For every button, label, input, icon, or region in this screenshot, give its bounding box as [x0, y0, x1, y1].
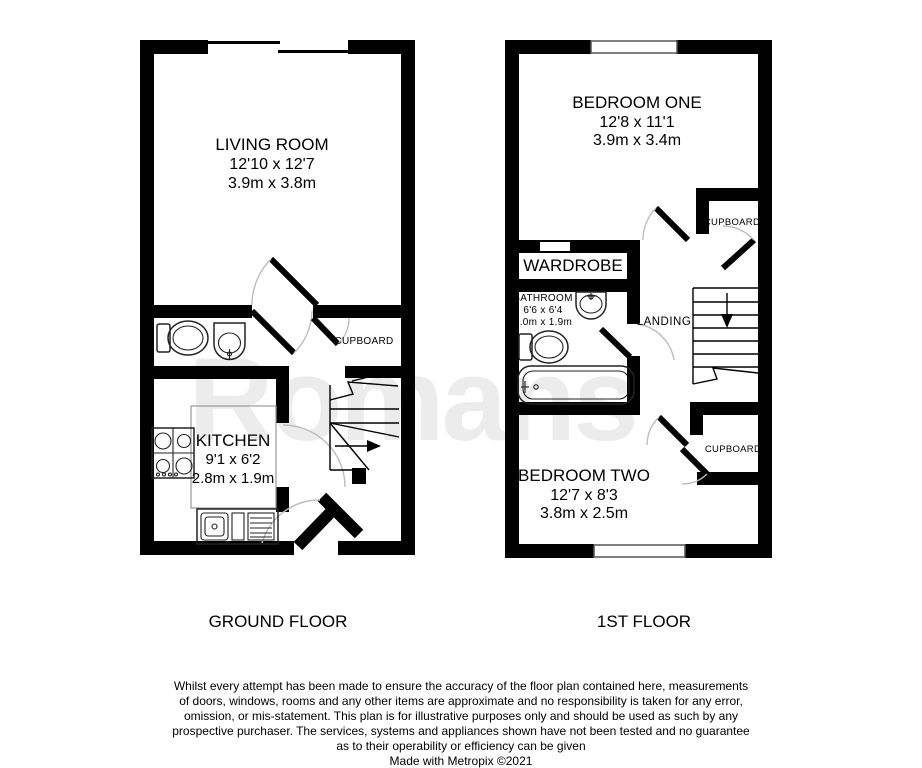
door-leaf	[682, 449, 707, 474]
room-label-kitchen: KITCHEN	[196, 431, 271, 450]
window	[591, 41, 677, 53]
room-label-cupboard-ground: CUPBOARD	[334, 336, 393, 347]
room-dim-imperial-kitchen: 9'1 x 6'2	[206, 451, 261, 468]
window	[594, 545, 685, 557]
room-label-wardrobe: WARDROBE	[523, 256, 623, 275]
ground-floor-windows	[206, 41, 350, 53]
sink-icon	[197, 509, 278, 544]
room-dim-imperial-bedroom-one: 12'8 x 11'1	[599, 114, 674, 131]
window	[278, 50, 350, 53]
room-dim-imperial-bathroom: 6'6 x 6'4	[523, 305, 562, 316]
window	[206, 41, 280, 44]
door-arc	[723, 226, 754, 240]
room-dim-metric-bedroom-one: 3.9m x 3.4m	[593, 132, 681, 149]
wardrobe-opening	[540, 251, 570, 253]
disclaimer-line: Whilst every attempt has been made to en…	[174, 679, 748, 693]
door-leaf	[659, 417, 687, 445]
disclaimer-line: prospective purchaser. The services, sys…	[172, 724, 750, 738]
floorplan-canvas: Romans	[0, 0, 922, 768]
door-arc	[252, 259, 271, 305]
stairs-down-arrow	[721, 314, 733, 328]
door-arc	[643, 208, 656, 240]
basin-icon-first	[576, 292, 606, 319]
hob-icon	[152, 428, 194, 478]
room-label-living-room: LIVING ROOM	[215, 135, 328, 154]
door-arc	[638, 324, 674, 360]
disclaimer-line: as to their operability or efficiency ca…	[336, 739, 585, 753]
door-leaf	[656, 208, 688, 240]
disclaimer-line: omission, or mis-statement. This plan is…	[184, 709, 738, 723]
ground-floor-plan: LIVING ROOM 12'10 x 12'7 3.9m x 3.8m KIT…	[140, 40, 415, 631]
footer-disclaimer: Whilst every attempt has been made to en…	[172, 679, 750, 768]
floor-title-ground: GROUND FLOOR	[209, 612, 348, 631]
floor-title-first: 1ST FLOOR	[597, 612, 691, 631]
room-dim-metric-living-room: 3.9m x 3.8m	[228, 175, 316, 192]
disclaimer-line: of doors, windows, rooms and any other i…	[179, 694, 743, 708]
room-label-bedroom-two: BEDROOM TWO	[518, 466, 650, 485]
stairs-icon-first	[693, 288, 758, 384]
room-label-landing: LANDING	[637, 316, 692, 328]
entrance-diagonal-wall	[298, 512, 331, 546]
wardrobe-opening	[540, 240, 570, 242]
room-label-cupboard-lower: CUPBOARD	[705, 444, 761, 455]
room-label-cupboard-upper: CUPBOARD	[704, 217, 760, 228]
room-dim-metric-kitchen: 2.8m x 1.9m	[192, 470, 275, 487]
room-dim-metric-bathroom: 2.0m x 1.9m	[514, 317, 572, 328]
room-dim-imperial-bedroom-two: 12'7 x 8'3	[550, 487, 618, 504]
door-leaf	[271, 259, 317, 305]
credit-line: Made with Metropix ©2021	[390, 754, 533, 768]
door-arc	[647, 417, 659, 445]
room-label-bathroom: BATHROOM	[513, 293, 572, 304]
room-dim-metric-bedroom-two: 3.8m x 2.5m	[540, 505, 628, 522]
room-label-bedroom-one: BEDROOM ONE	[572, 93, 701, 112]
door-leaf	[723, 240, 754, 268]
floorplan-page: Romans	[0, 0, 922, 768]
room-dim-imperial-living-room: 12'10 x 12'7	[229, 156, 314, 173]
